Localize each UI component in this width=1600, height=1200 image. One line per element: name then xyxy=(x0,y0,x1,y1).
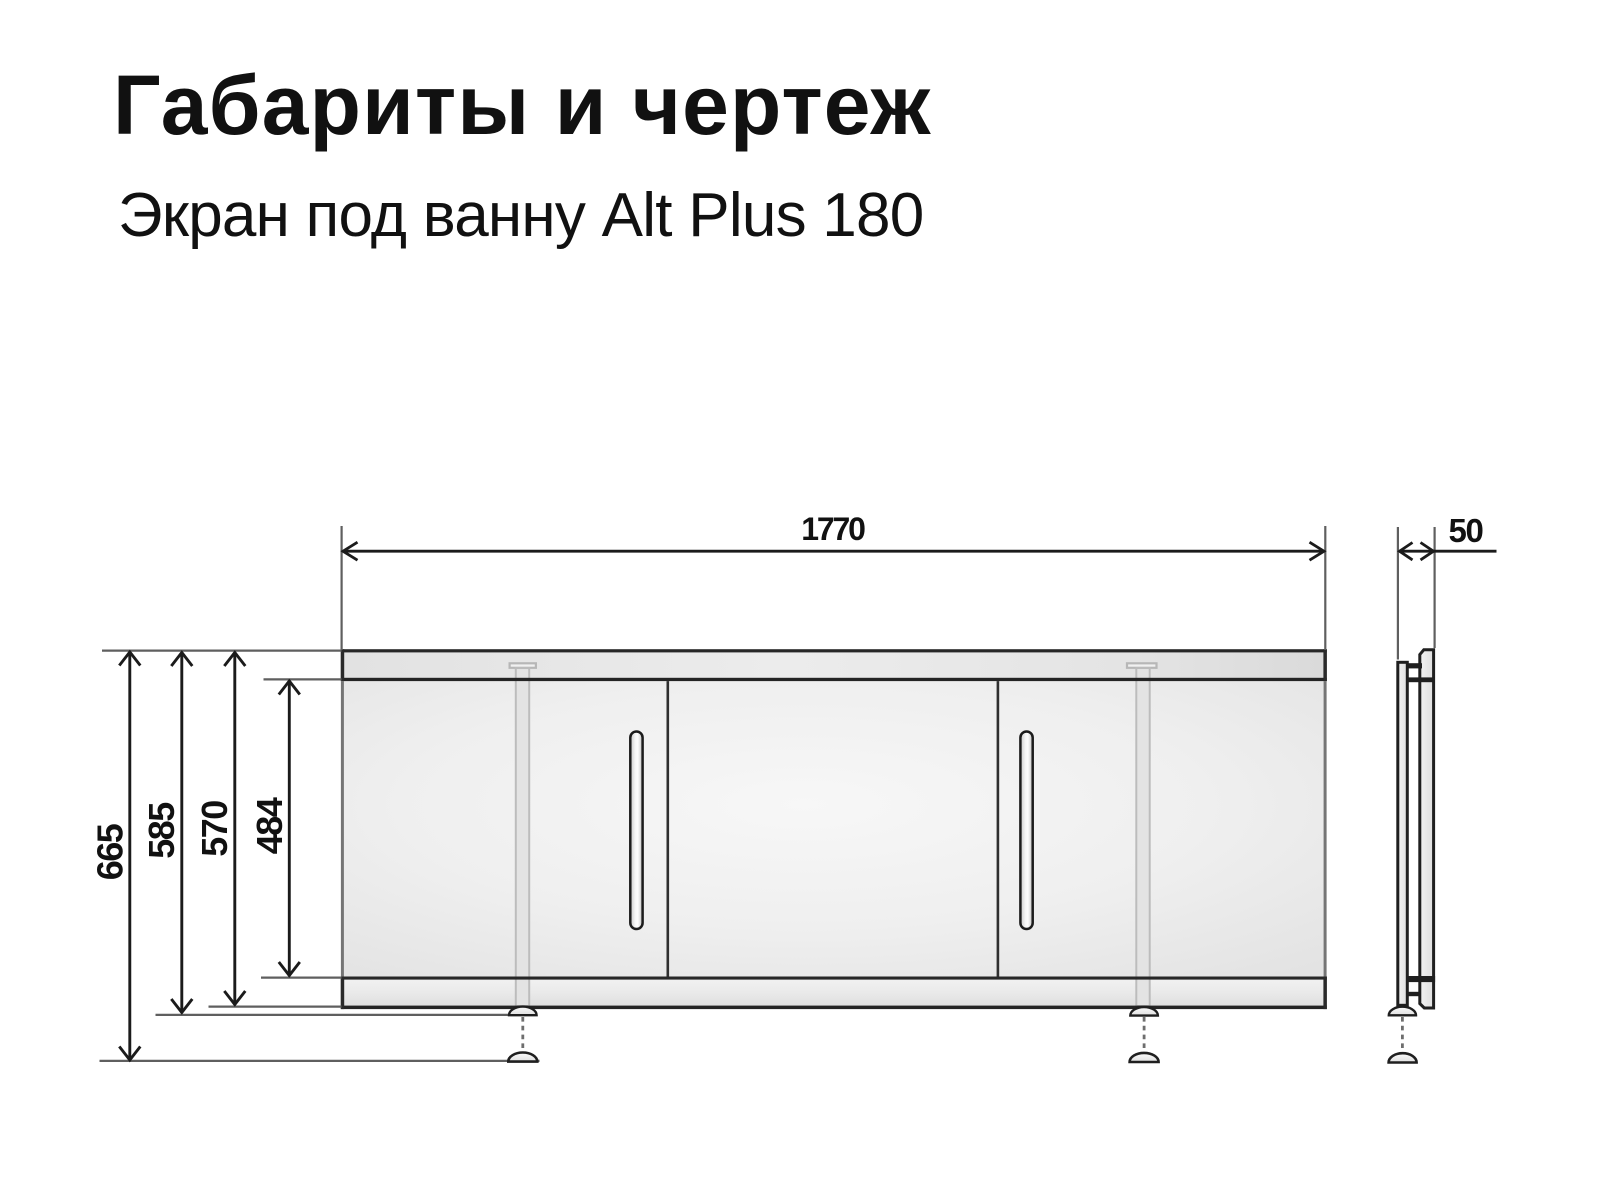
svg-text:665: 665 xyxy=(89,823,130,880)
svg-text:50: 50 xyxy=(1449,512,1483,549)
svg-text:Габариты и чертеж: Габариты и чертеж xyxy=(113,58,932,152)
svg-text:Экран под ванну Alt Plus 180: Экран под ванну Alt Plus 180 xyxy=(118,181,924,250)
svg-text:484: 484 xyxy=(249,797,290,854)
svg-text:570: 570 xyxy=(194,801,235,857)
svg-text:1770: 1770 xyxy=(801,511,865,547)
svg-text:585: 585 xyxy=(141,802,182,859)
